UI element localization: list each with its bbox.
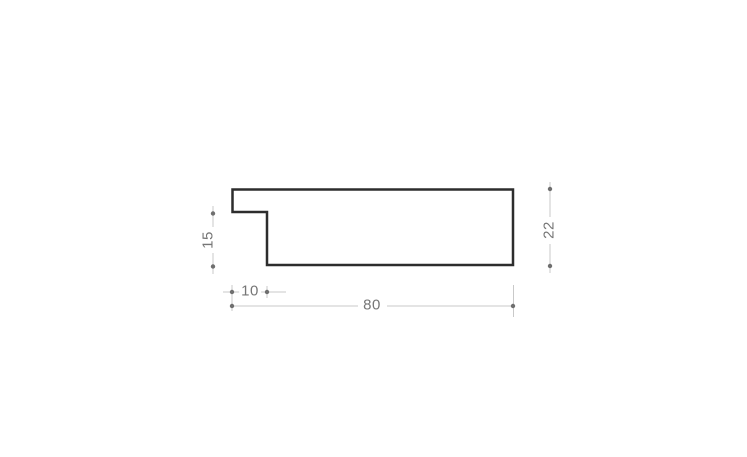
dim-dot [230, 304, 234, 308]
dimension-label-overall-height: 22 [540, 221, 559, 239]
dim-dot [230, 290, 234, 294]
technical-drawing-canvas: 15 22 10 80 [0, 0, 747, 457]
dim-dot [211, 211, 215, 215]
dim-dot [211, 264, 215, 268]
dim-dot [548, 187, 552, 191]
profile-outline [233, 190, 514, 266]
profile-drawing-svg [0, 0, 747, 457]
dimension-label-rabbet-height: 15 [199, 231, 218, 249]
dim-dot [265, 290, 269, 294]
dim-dot [548, 264, 552, 268]
dim-dot [511, 304, 515, 308]
dimension-label-overall-width: 80 [361, 298, 383, 313]
dimension-label-rabbet-width: 10 [239, 284, 261, 299]
dimension-markers [211, 187, 552, 308]
